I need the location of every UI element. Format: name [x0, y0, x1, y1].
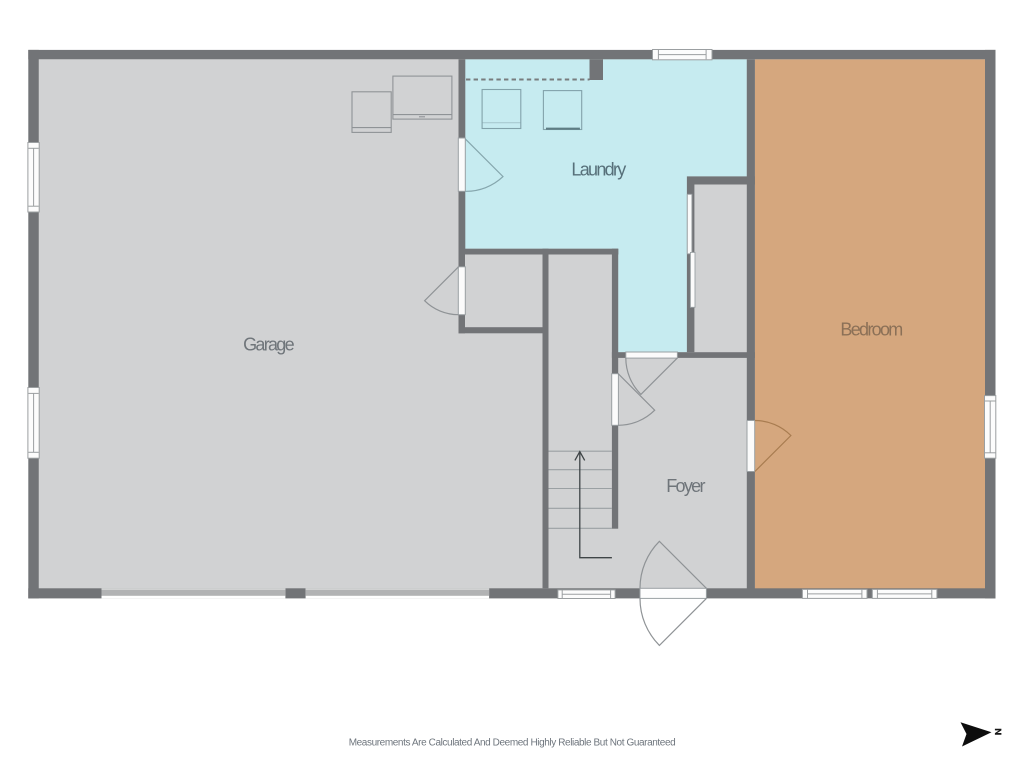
svg-text:Laundry: Laundry [571, 160, 626, 180]
svg-text:Foyer: Foyer [666, 476, 705, 496]
svg-text:Measurements Are Calculated An: Measurements Are Calculated And Deemed H… [349, 738, 676, 749]
svg-text:Garage: Garage [243, 335, 295, 355]
svg-text:Bedroom: Bedroom [840, 320, 902, 340]
